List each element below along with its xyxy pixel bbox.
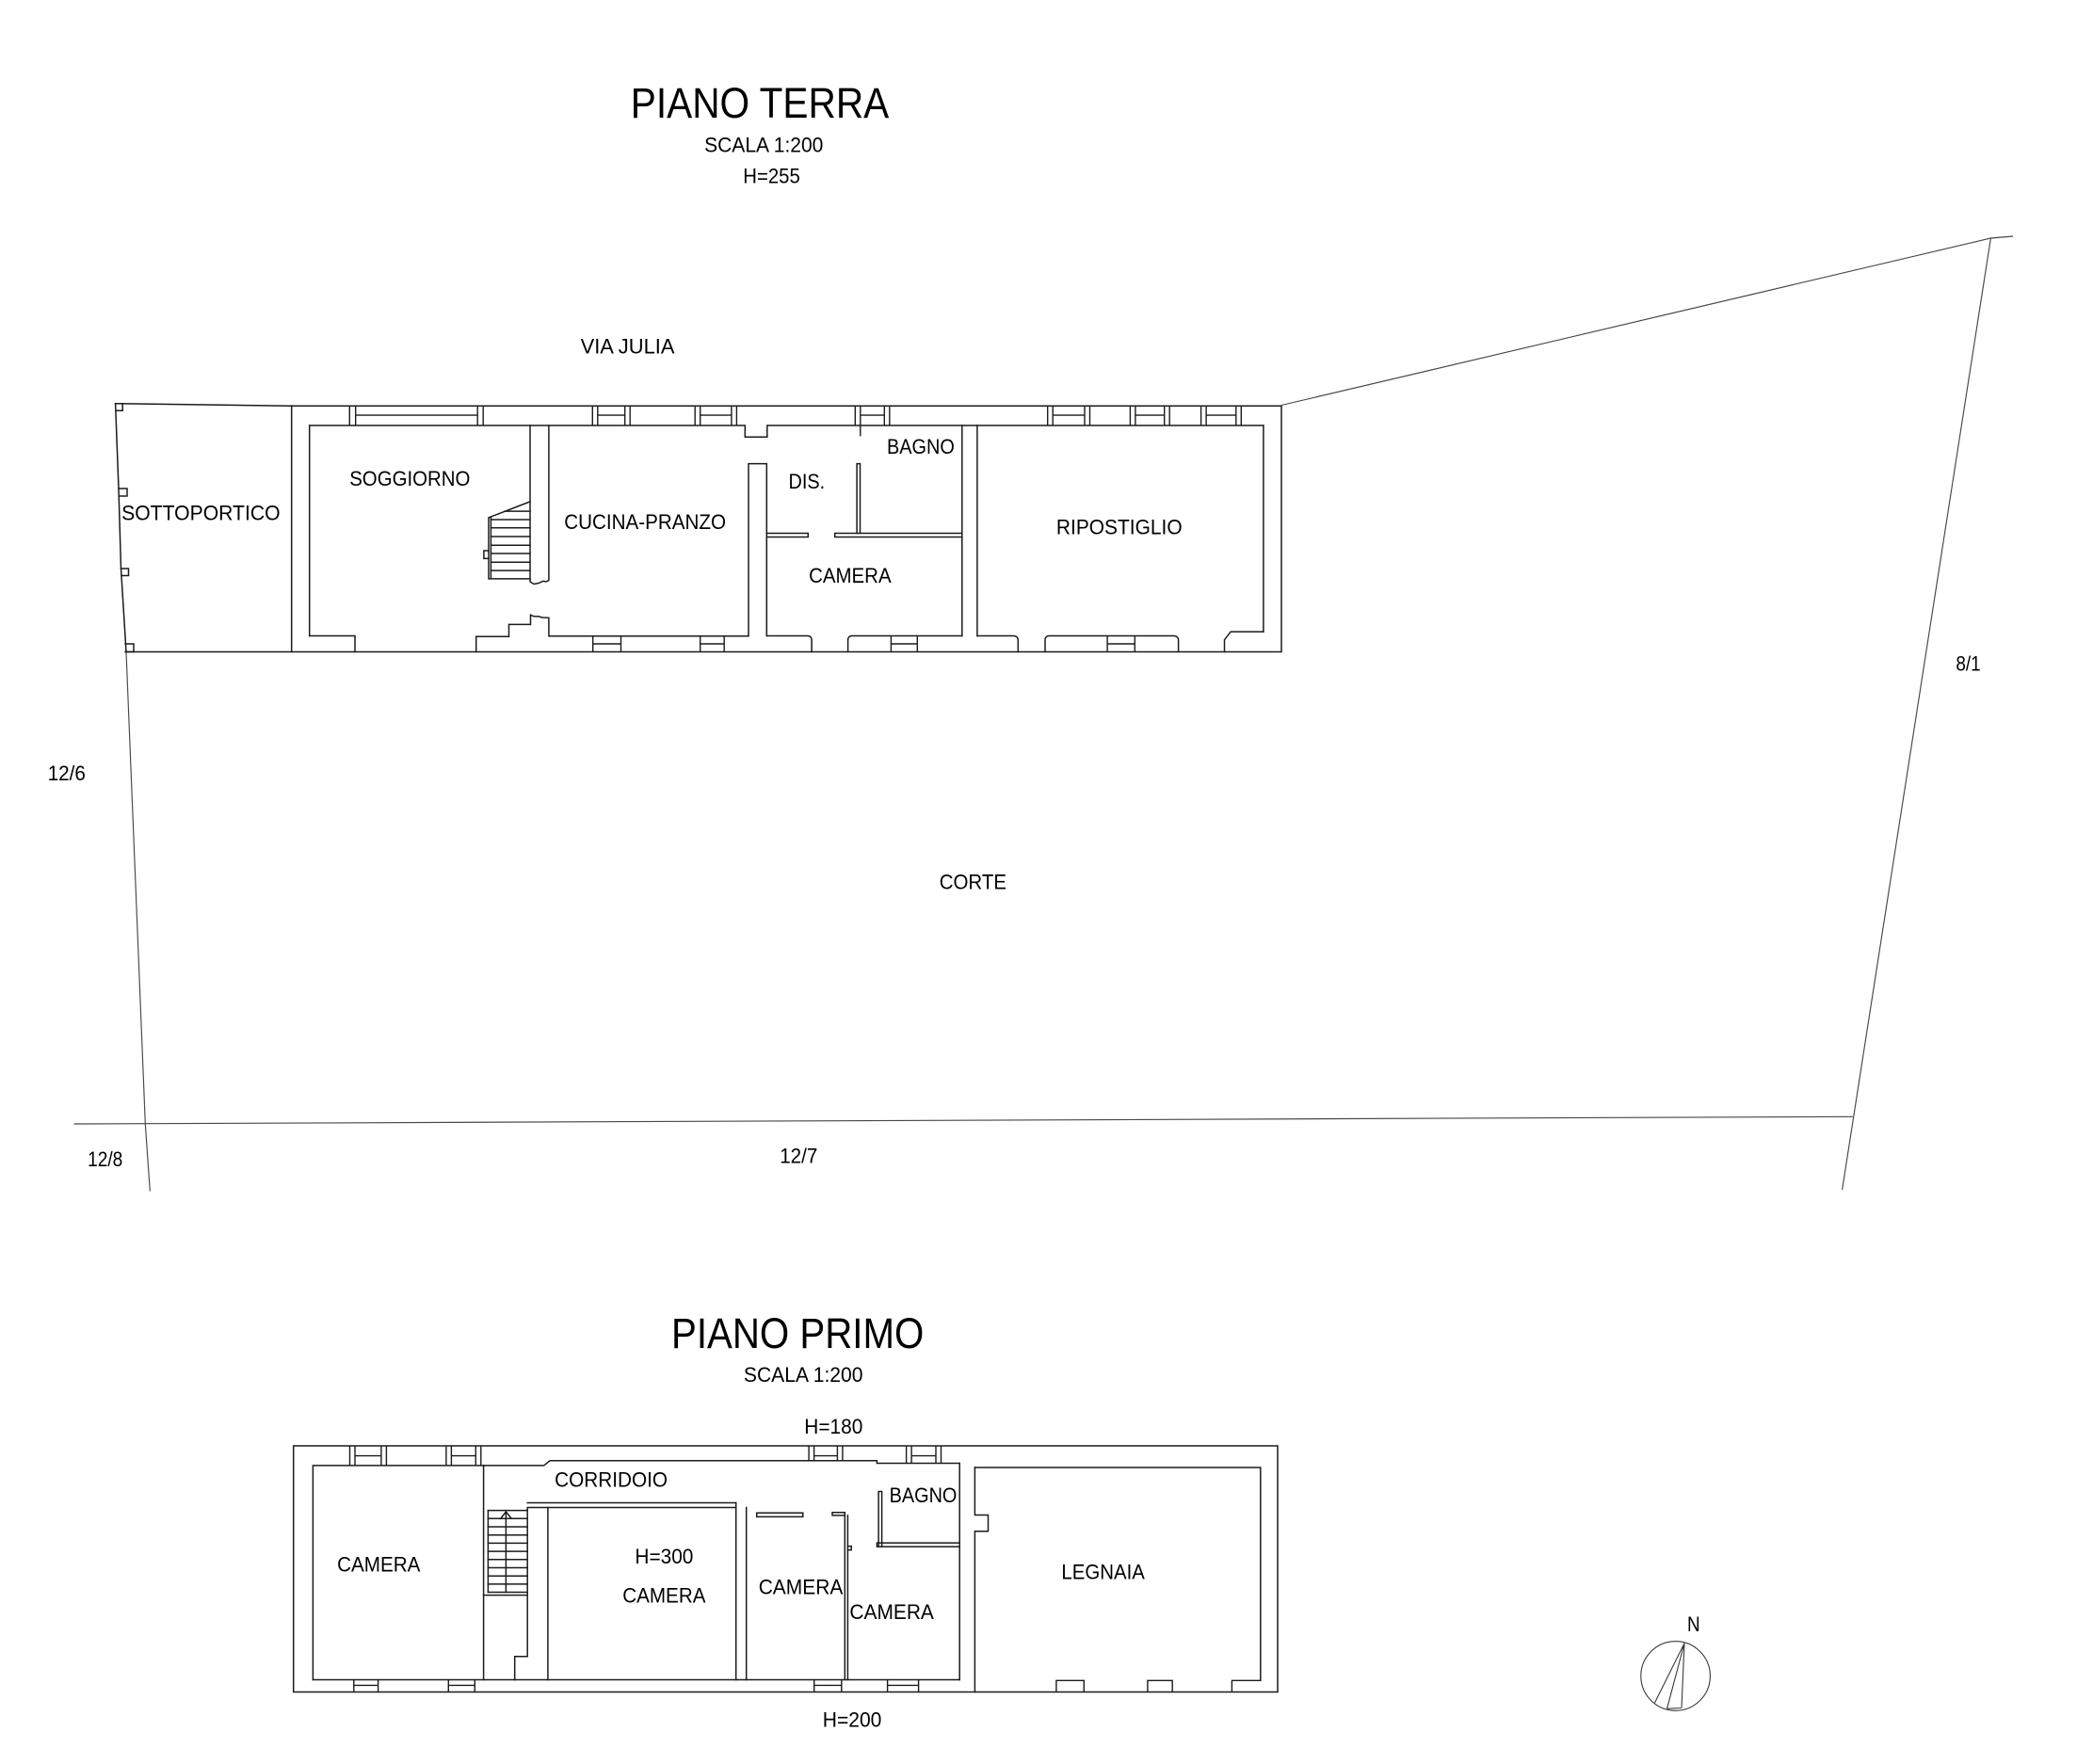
svg-text:12/8: 12/8 — [88, 1147, 122, 1171]
svg-text:N: N — [1687, 1612, 1700, 1636]
svg-text:CAMERA: CAMERA — [759, 1576, 844, 1599]
svg-text:SCALA 1:200: SCALA 1:200 — [704, 134, 823, 157]
svg-text:12/6: 12/6 — [48, 762, 86, 785]
svg-text:CORRIDOIO: CORRIDOIO — [555, 1468, 668, 1492]
svg-text:PIANO TERRA: PIANO TERRA — [631, 79, 889, 127]
svg-text:H=180: H=180 — [804, 1415, 862, 1438]
svg-text:SCALA 1:200: SCALA 1:200 — [744, 1363, 863, 1387]
svg-text:CUCINA-PRANZO: CUCINA-PRANZO — [564, 510, 726, 534]
svg-text:CAMERA: CAMERA — [849, 1600, 934, 1624]
svg-text:PIANO PRIMO: PIANO PRIMO — [671, 1309, 924, 1357]
svg-text:BAGNO: BAGNO — [890, 1483, 958, 1507]
svg-text:LEGNAIA: LEGNAIA — [1061, 1561, 1145, 1584]
svg-text:CAMERA: CAMERA — [809, 564, 892, 587]
svg-text:12/7: 12/7 — [780, 1145, 817, 1168]
svg-text:CAMERA: CAMERA — [622, 1584, 705, 1608]
svg-text:8/1: 8/1 — [1956, 652, 1980, 676]
svg-text:H=200: H=200 — [823, 1708, 882, 1731]
svg-text:RIPOSTIGLIO: RIPOSTIGLIO — [1056, 515, 1183, 538]
svg-text:H=255: H=255 — [743, 165, 800, 188]
svg-text:SOGGIORNO: SOGGIORNO — [349, 467, 470, 490]
svg-text:H=300: H=300 — [635, 1545, 693, 1568]
svg-text:SOTTOPORTICO: SOTTOPORTICO — [121, 501, 281, 524]
svg-text:CORTE: CORTE — [940, 870, 1006, 893]
svg-text:VIA JULIA: VIA JULIA — [581, 335, 675, 359]
svg-text:CAMERA: CAMERA — [337, 1552, 420, 1576]
svg-text:BAGNO: BAGNO — [887, 435, 955, 458]
svg-text:DIS.: DIS. — [789, 470, 826, 493]
